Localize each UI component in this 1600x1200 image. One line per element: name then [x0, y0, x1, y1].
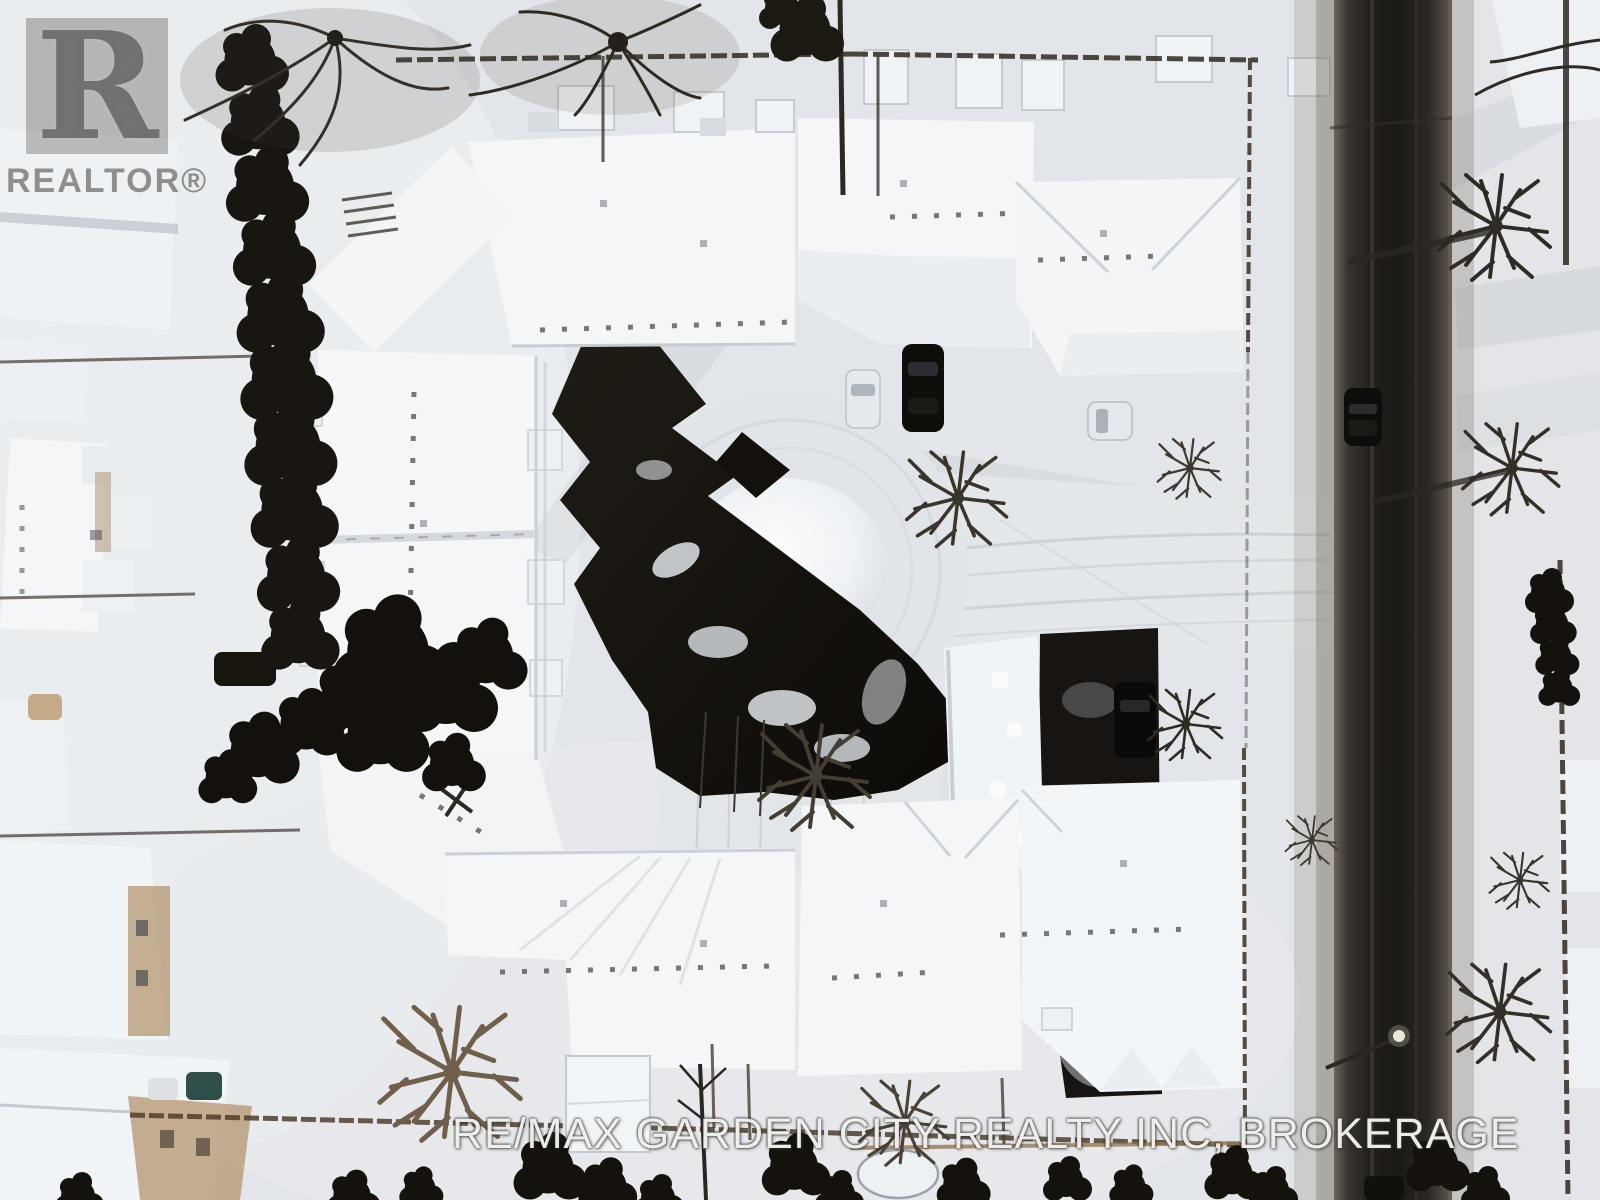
car-white-3	[148, 1078, 178, 1100]
aerial-photo: R REALTOR® RE/MAX GARDEN CITY REALTY INC…	[0, 0, 1600, 1200]
car-white-2	[1088, 402, 1132, 440]
tree-trunk	[840, 0, 843, 195]
house-siding	[128, 1096, 252, 1200]
car-tan	[28, 694, 62, 720]
brokerage-watermark-text: RE/MAX GARDEN CITY REALTY INC, BROKERAGE	[452, 1110, 1519, 1159]
building-bottom-right-1	[798, 798, 1022, 1076]
road-asphalt	[1334, 0, 1452, 1200]
car-dark-driveway	[1114, 682, 1156, 758]
complex-top-wing	[468, 128, 795, 346]
road	[1294, 0, 1474, 1200]
car-on-road	[1344, 388, 1382, 446]
building-top-right-1	[798, 118, 1034, 348]
house-beige	[0, 840, 170, 1040]
house-siding	[128, 886, 170, 1036]
building-top-right-2	[1016, 178, 1244, 376]
car-dark	[902, 344, 944, 432]
aerial-scene	[0, 0, 1600, 1200]
car-on-road-bottom	[1364, 1176, 1404, 1200]
house-bottom-left	[0, 1048, 252, 1200]
car-white	[846, 370, 880, 428]
car-teal	[186, 1072, 222, 1100]
